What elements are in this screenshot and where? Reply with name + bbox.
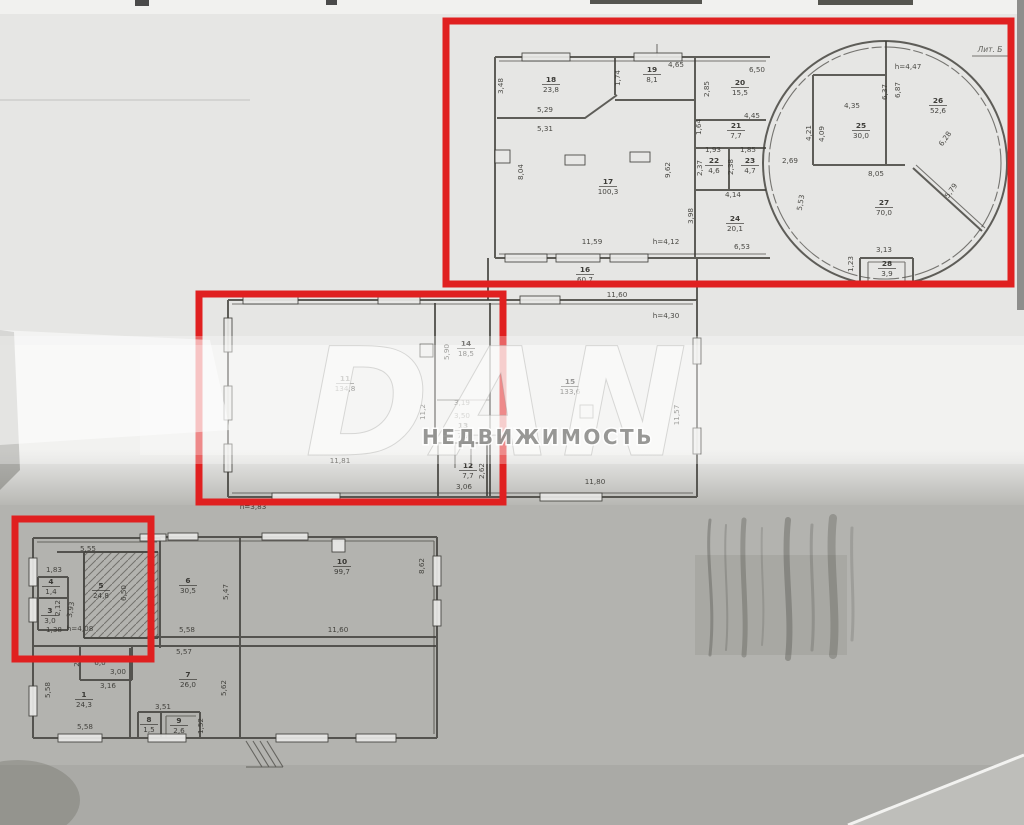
svg-text:28: 28 [882, 259, 892, 268]
svg-text:30,0: 30,0 [853, 131, 869, 140]
dim-label: 1,93 [705, 145, 721, 154]
dim-label: 8,04 [516, 164, 525, 180]
lit-annotation: Лит. Б [977, 45, 1003, 54]
dim-label: 1,85 [740, 145, 756, 154]
svg-text:7: 7 [185, 670, 190, 679]
dim-label: 5,62 [219, 680, 228, 696]
dim-label: 2,12 [53, 600, 62, 616]
dim-label: 5,57 [176, 647, 192, 656]
dim-label: 4,35 [844, 101, 860, 110]
dim-label: 6,50 [119, 585, 128, 601]
dim-label: 6,50 [749, 65, 765, 74]
svg-text:20,1: 20,1 [727, 224, 743, 233]
svg-text:8,1: 8,1 [646, 75, 657, 84]
dim-label: 4,09 [817, 126, 826, 142]
dim-label: h=4,12 [653, 237, 680, 246]
dim-label: 3,98 [686, 208, 695, 224]
dim-label: 11,59 [582, 237, 603, 246]
svg-text:9: 9 [176, 716, 181, 725]
svg-text:15,5: 15,5 [732, 88, 748, 97]
svg-text:3,9: 3,9 [881, 269, 893, 278]
dim-label: 11,60 [328, 625, 349, 634]
dim-label: 6,87 [893, 82, 902, 98]
dim-label: 5,58 [43, 682, 52, 698]
dim-label: h=4,47 [895, 62, 922, 71]
svg-text:22: 22 [709, 156, 719, 165]
watermark-subtitle: НЕДВИЖИМОСТЬ [422, 425, 654, 449]
svg-text:4,7: 4,7 [744, 166, 755, 175]
svg-text:10: 10 [337, 557, 347, 566]
svg-text:26: 26 [933, 96, 943, 105]
svg-text:3: 3 [47, 606, 52, 615]
dim-label: 2,85 [702, 81, 711, 97]
svg-text:27: 27 [879, 198, 889, 207]
scanned-floor-plan: 3,485,295,311,744,652,856,501,644,451,93… [0, 0, 1024, 825]
dim-label: 3,00 [110, 667, 126, 676]
floor-plan-svg: 3,485,295,311,744,652,856,501,644,451,93… [0, 0, 1024, 825]
dim-label: 1,52 [196, 718, 205, 734]
svg-text:1,4: 1,4 [45, 587, 57, 596]
svg-text:23: 23 [745, 156, 755, 165]
svg-text:17: 17 [603, 177, 613, 186]
svg-text:16: 16 [580, 265, 590, 274]
svg-text:2,6: 2,6 [173, 726, 185, 735]
dim-label: 5,47 [221, 584, 230, 600]
dim-label: 1,23 [846, 256, 855, 272]
dim-label: 1,74 [613, 70, 622, 86]
dim-label: 6,37 [880, 84, 889, 100]
svg-text:52,6: 52,6 [930, 106, 946, 115]
svg-text:8: 8 [146, 715, 151, 724]
dim-label: 3,51 [155, 702, 171, 711]
dim-label: 1,38 [46, 625, 62, 634]
svg-text:21: 21 [731, 121, 741, 130]
svg-text:24,8: 24,8 [93, 591, 109, 600]
svg-text:3,0: 3,0 [44, 616, 56, 625]
dim-label: 5,55 [80, 544, 96, 553]
dim-label: 2,37 [695, 160, 704, 176]
dim-label: h=4,08 [67, 624, 94, 633]
dim-label: 11,60 [607, 290, 628, 299]
svg-text:5: 5 [98, 581, 103, 590]
svg-text:100,3: 100,3 [598, 187, 619, 196]
dim-label: 2,38 [726, 159, 735, 175]
dim-label: 8,05 [868, 169, 884, 178]
dim-label: 4,45 [744, 111, 760, 120]
svg-text:4,6: 4,6 [708, 166, 720, 175]
svg-text:7,7: 7,7 [730, 131, 741, 140]
svg-text:30,5: 30,5 [180, 586, 196, 595]
svg-text:18: 18 [546, 75, 556, 84]
svg-text:23,8: 23,8 [543, 85, 559, 94]
dim-label: 3,13 [876, 245, 892, 254]
dim-label: 5,58 [77, 722, 93, 731]
svg-text:1,5: 1,5 [143, 725, 154, 734]
dim-label: 3,48 [496, 78, 505, 94]
svg-text:6: 6 [185, 576, 190, 585]
svg-text:24,3: 24,3 [76, 700, 92, 709]
dim-label: 6,53 [734, 242, 750, 251]
dim-label: 5,29 [537, 105, 553, 114]
dim-label: 8,62 [417, 558, 426, 574]
svg-text:99,7: 99,7 [334, 567, 350, 576]
dim-label: 9,62 [663, 162, 672, 178]
svg-text:26,0: 26,0 [180, 680, 196, 689]
dim-label: 5,58 [179, 625, 195, 634]
dim-label: 4,14 [725, 190, 741, 199]
dim-label: 4,21 [804, 125, 813, 141]
dim-label: 5,31 [537, 124, 553, 133]
svg-text:24: 24 [730, 214, 740, 223]
dim-label: 2,69 [782, 156, 798, 165]
svg-text:4: 4 [48, 577, 53, 586]
dim-label: 4,65 [668, 60, 684, 69]
svg-text:20: 20 [735, 78, 745, 87]
svg-text:70,0: 70,0 [876, 208, 892, 217]
svg-text:19: 19 [647, 65, 657, 74]
svg-text:25: 25 [856, 121, 866, 130]
svg-text:1: 1 [81, 690, 86, 699]
dim-label: 1,64 [694, 119, 703, 135]
dim-label: 3,16 [100, 681, 116, 690]
dim-label: 1,83 [46, 565, 62, 574]
watermark-word: DAN [305, 317, 695, 491]
